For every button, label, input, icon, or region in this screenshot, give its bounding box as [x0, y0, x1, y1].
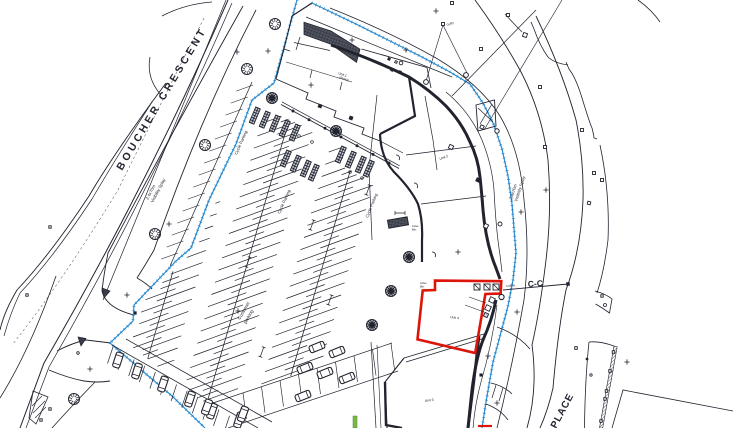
svg-text:Bin: Bin	[420, 285, 425, 289]
svg-text:C-C: C-C	[527, 278, 543, 289]
svg-text:0.980m: 0.980m	[506, 283, 516, 288]
svg-text:Bin: Bin	[412, 228, 417, 232]
